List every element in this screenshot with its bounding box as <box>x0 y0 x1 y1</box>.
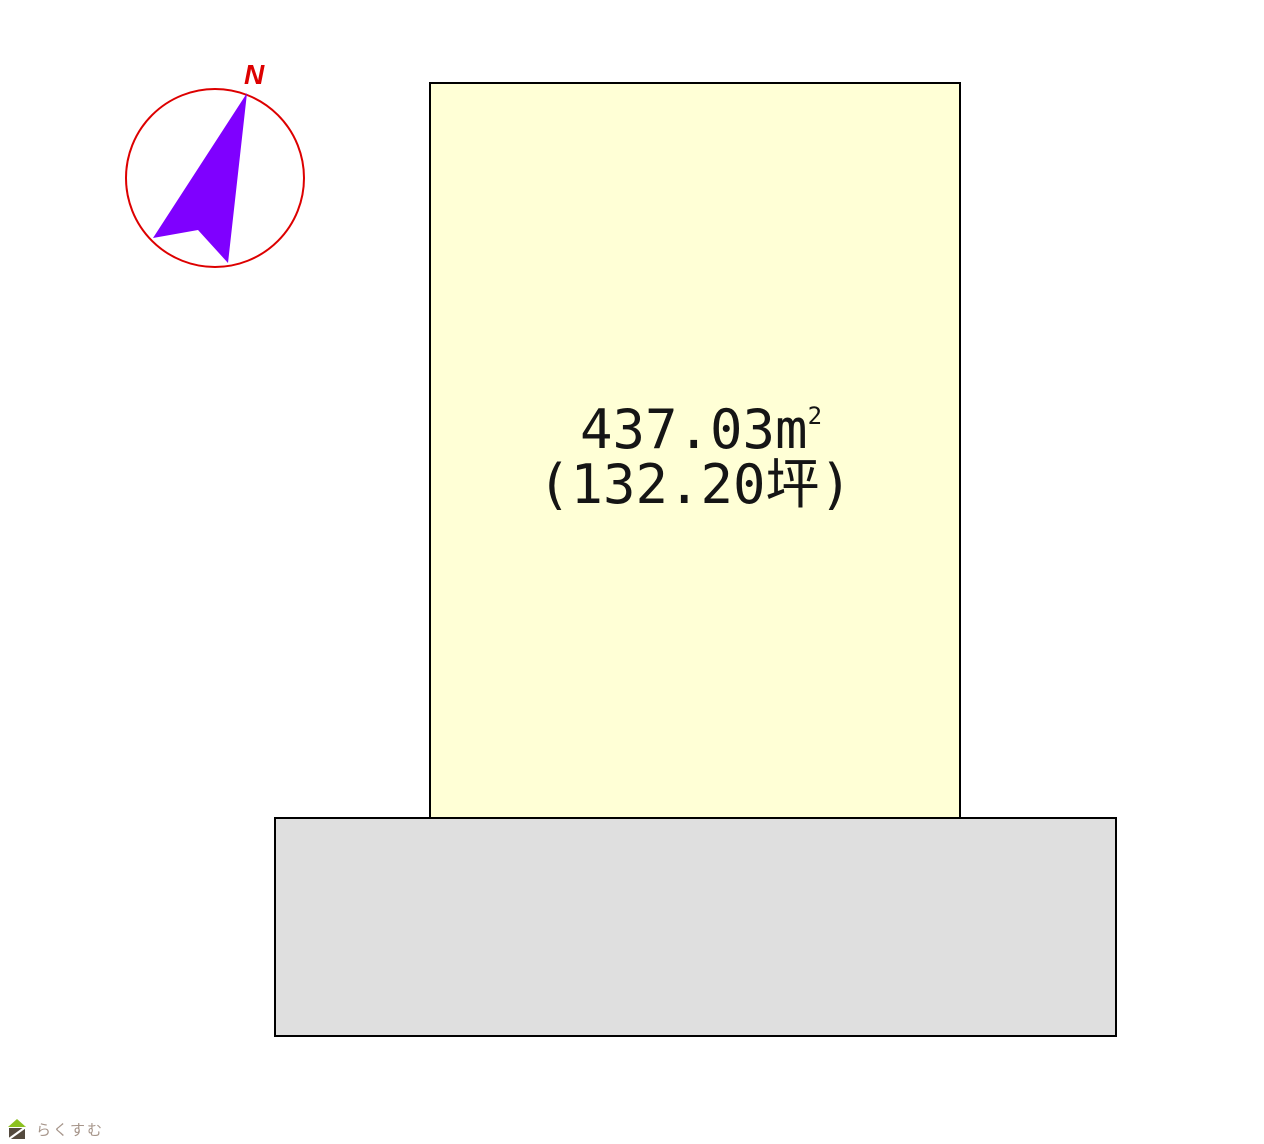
land-plot-area: 437.03m2 (132.20坪) <box>429 82 961 817</box>
land-plot-diagram: N 437.03m2 (132.20坪) らくすむ <box>0 0 1264 1144</box>
plot-area-text: 437.03m2 (132.20坪) <box>538 389 852 512</box>
compass-north-label: N <box>244 59 265 90</box>
compass-needle-icon <box>153 93 247 263</box>
plot-area-unit-exponent: 2 <box>808 402 822 430</box>
plot-area-value: 437.03 <box>580 398 775 461</box>
site-logo: らくすむ <box>7 1117 104 1141</box>
house-roof <box>8 1119 26 1127</box>
plot-area-unit: m <box>775 398 808 461</box>
plot-area-tsubo: (132.20坪) <box>538 457 852 512</box>
house-icon <box>7 1119 27 1139</box>
compass: N <box>120 50 320 270</box>
logo-text: らくすむ <box>36 1119 104 1140</box>
road-area <box>274 817 1117 1037</box>
plot-area-sqm: 437.03m2 <box>544 389 858 457</box>
